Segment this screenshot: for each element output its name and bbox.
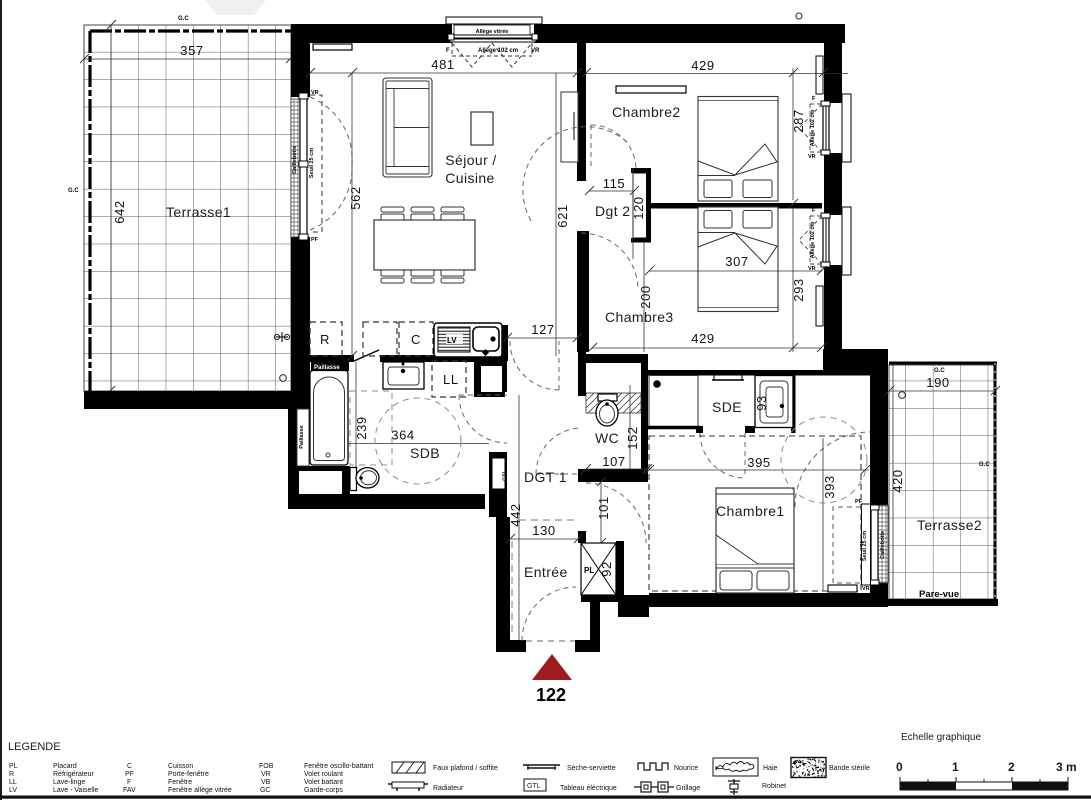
svg-text:LL: LL bbox=[443, 372, 459, 387]
svg-text:C: C bbox=[411, 332, 421, 347]
svg-text:642: 642 bbox=[112, 200, 127, 224]
svg-text:357: 357 bbox=[180, 43, 204, 58]
svg-text:120: 120 bbox=[631, 196, 646, 220]
svg-text:481: 481 bbox=[431, 57, 455, 72]
svg-text:Nourice: Nourice bbox=[674, 765, 698, 772]
svg-text:429: 429 bbox=[691, 58, 715, 73]
svg-text:Seuil 25 cm: Seuil 25 cm bbox=[309, 148, 315, 178]
svg-text:152: 152 bbox=[625, 426, 640, 450]
svg-text:Réfrigérateur: Réfrigérateur bbox=[53, 771, 95, 778]
svg-text:Entrée: Entrée bbox=[524, 564, 568, 580]
svg-text:Allège 102 cm: Allège 102 cm bbox=[478, 48, 518, 54]
svg-text:LL: LL bbox=[9, 779, 17, 786]
svg-text:F: F bbox=[446, 48, 450, 54]
svg-text:Radiateur: Radiateur bbox=[433, 785, 464, 792]
svg-text:2: 2 bbox=[1008, 760, 1015, 774]
svg-text:Dgt 2: Dgt 2 bbox=[595, 203, 630, 219]
svg-text:Haie: Haie bbox=[763, 765, 778, 772]
svg-text:VR: VR bbox=[261, 771, 271, 778]
svg-text:3 m: 3 m bbox=[1056, 760, 1077, 774]
svg-text:Allège 102 cm: Allège 102 cm bbox=[810, 110, 816, 147]
svg-text:F: F bbox=[127, 779, 131, 786]
svg-text:DGT 1: DGT 1 bbox=[524, 469, 567, 485]
svg-text:Chambre3: Chambre3 bbox=[605, 309, 674, 325]
svg-text:R: R bbox=[9, 771, 14, 778]
svg-text:Echelle graphique: Echelle graphique bbox=[901, 732, 981, 743]
svg-text:Pare-vue: Pare-vue bbox=[919, 589, 959, 600]
svg-text:G.C: G.C bbox=[178, 16, 189, 22]
svg-text:LEGENDE: LEGENDE bbox=[8, 741, 61, 753]
svg-text:Grillage: Grillage bbox=[676, 785, 700, 792]
svg-text:VB: VB bbox=[261, 779, 271, 786]
svg-text:GTL: GTL bbox=[527, 783, 541, 790]
svg-text:G.C: G.C bbox=[979, 462, 990, 468]
svg-text:1: 1 bbox=[952, 760, 959, 774]
svg-text:562: 562 bbox=[348, 186, 363, 210]
svg-text:Placard: Placard bbox=[53, 763, 77, 770]
svg-text:Chambre2: Chambre2 bbox=[612, 104, 681, 120]
svg-text:VR: VR bbox=[862, 586, 870, 592]
svg-text:Seuil 25 cm: Seuil 25 cm bbox=[862, 531, 868, 561]
svg-text:Fenêtre oscillo-battant: Fenêtre oscillo-battant bbox=[304, 763, 373, 770]
svg-text:621: 621 bbox=[555, 204, 570, 228]
svg-text:420: 420 bbox=[890, 469, 905, 493]
svg-text:429: 429 bbox=[691, 331, 715, 346]
svg-text:Lave - Vaiselle: Lave - Vaiselle bbox=[53, 787, 99, 794]
svg-text:Porte-fenêtre: Porte-fenêtre bbox=[168, 771, 209, 778]
svg-text:92: 92 bbox=[599, 561, 614, 577]
svg-text:107: 107 bbox=[602, 454, 626, 469]
svg-text:307: 307 bbox=[725, 254, 749, 269]
svg-text:93: 93 bbox=[754, 395, 769, 411]
svg-text:Paillasse: Paillasse bbox=[299, 425, 305, 449]
svg-text:200: 200 bbox=[638, 285, 653, 309]
svg-text:Chambre1: Chambre1 bbox=[716, 503, 785, 519]
svg-text:190: 190 bbox=[926, 375, 950, 390]
svg-text:Garde-corps: Garde-corps bbox=[304, 787, 343, 794]
svg-text:GTL: GTL bbox=[503, 469, 509, 481]
svg-text:PL: PL bbox=[9, 763, 18, 770]
svg-text:G.C: G.C bbox=[934, 368, 945, 374]
svg-text:PF: PF bbox=[311, 237, 319, 243]
svg-text:0: 0 bbox=[896, 760, 903, 774]
svg-text:Volet battant: Volet battant bbox=[304, 779, 343, 786]
svg-text:127: 127 bbox=[531, 322, 555, 337]
svg-text:R: R bbox=[320, 332, 330, 347]
svg-text:130: 130 bbox=[532, 523, 556, 538]
svg-text:PF: PF bbox=[125, 771, 134, 778]
svg-text:Bande stérile: Bande stérile bbox=[829, 765, 870, 772]
svg-text:Fenêtre allège vitrée: Fenêtre allège vitrée bbox=[168, 787, 232, 794]
svg-text:C: C bbox=[127, 763, 132, 770]
svg-text:G.C: G.C bbox=[68, 188, 79, 194]
svg-text:GC: GC bbox=[260, 787, 271, 794]
svg-text:Terrasse1: Terrasse1 bbox=[166, 204, 231, 220]
svg-text:VR: VR bbox=[808, 154, 816, 160]
svg-text:Caillebotis: Caillebotis bbox=[880, 531, 886, 559]
svg-text:442: 442 bbox=[508, 503, 523, 527]
svg-text:393: 393 bbox=[822, 475, 837, 499]
svg-text:LV: LV bbox=[447, 336, 457, 345]
svg-text:WC: WC bbox=[595, 430, 619, 446]
svg-text:364: 364 bbox=[391, 428, 415, 443]
svg-text:Caillebotis: Caillebotis bbox=[292, 146, 298, 174]
svg-text:PL: PL bbox=[584, 566, 594, 575]
svg-text:Robinet: Robinet bbox=[762, 783, 786, 790]
svg-text:FOB: FOB bbox=[259, 763, 274, 770]
svg-text:395: 395 bbox=[747, 455, 771, 470]
svg-text:Cuisson: Cuisson bbox=[168, 763, 193, 770]
svg-text:101: 101 bbox=[596, 496, 611, 520]
svg-text:SDB: SDB bbox=[410, 445, 440, 461]
svg-text:122: 122 bbox=[536, 685, 566, 705]
svg-text:FAV: FAV bbox=[123, 787, 136, 794]
svg-text:Allège 102 cm: Allège 102 cm bbox=[810, 222, 816, 259]
svg-text:Terrasse2: Terrasse2 bbox=[917, 517, 982, 533]
svg-text:115: 115 bbox=[603, 176, 626, 191]
svg-text:Lave-linge: Lave-linge bbox=[53, 779, 85, 786]
svg-text:Allège vitrée: Allège vitrée bbox=[476, 29, 509, 35]
svg-text:SDE: SDE bbox=[712, 399, 742, 415]
svg-text:Fenêtre: Fenêtre bbox=[168, 779, 192, 786]
svg-text:Séjour /: Séjour / bbox=[445, 152, 496, 168]
svg-text:Cuisine: Cuisine bbox=[445, 170, 495, 186]
svg-text:Volet roulant: Volet roulant bbox=[304, 771, 343, 778]
svg-text:Faux plafond / soffite: Faux plafond / soffite bbox=[433, 765, 498, 772]
svg-text:Sèche-serviette: Sèche-serviette bbox=[567, 765, 616, 772]
svg-text:VR: VR bbox=[531, 48, 540, 54]
svg-text:Tableau éléctrique: Tableau éléctrique bbox=[560, 785, 617, 792]
svg-text:LV: LV bbox=[9, 787, 17, 794]
